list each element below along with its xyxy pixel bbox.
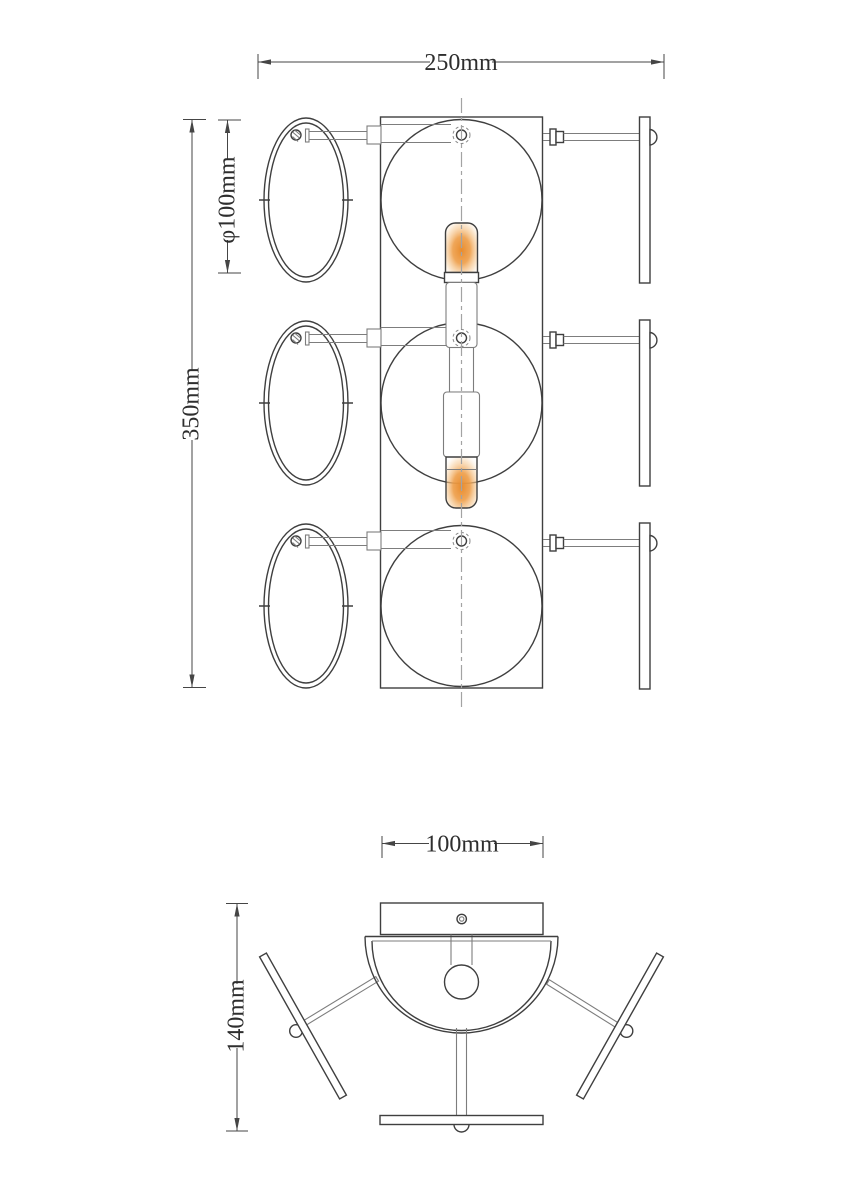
height-arrow-top <box>189 120 194 133</box>
dimension-overall-depth-label: 140mm <box>224 979 250 1053</box>
depth-arrow-top <box>234 904 239 917</box>
holder-stem-lines <box>451 935 472 966</box>
right-bolt-head-2 <box>550 332 556 348</box>
canopy-arrow-left <box>382 841 395 846</box>
dimension-overall-height-label: 350mm <box>179 367 205 441</box>
screw-washer-3 <box>306 535 310 548</box>
right-bolt-head-3 <box>550 535 556 551</box>
depth-arrow-bottom <box>234 1118 239 1131</box>
dimension-canopy-width-label: 100mm <box>425 832 499 858</box>
arm-sleeve-2 <box>367 329 381 347</box>
left-angled-rod <box>301 977 378 1027</box>
top-view-dimensions: 100mm 140mm <box>224 832 544 1132</box>
right-bolt-head-1 <box>550 129 556 145</box>
bottom-arm-assembly <box>380 1028 543 1132</box>
side-disc-outer-3 <box>264 524 348 688</box>
bottom-rod-lines <box>457 1028 467 1116</box>
right-disc-edge-1 <box>640 117 651 283</box>
left-arm-rod-3 <box>309 538 367 546</box>
side-disc-inner-1 <box>269 123 344 277</box>
dimension-shade-diameter-label: φ100mm <box>215 156 241 244</box>
right-bolt-nut-1 <box>556 132 564 143</box>
screw-washer-1 <box>306 129 310 142</box>
dimension-overall-width-label: 250mm <box>424 50 498 76</box>
screw-washer-2 <box>306 332 310 345</box>
drawing-canvas: 250mm 350mm φ100mm <box>0 0 848 1200</box>
lamp-dimension-drawing: 250mm 350mm φ100mm <box>0 0 848 1200</box>
right-stub-3 <box>543 540 550 547</box>
right-disc-edge-3 <box>640 523 651 689</box>
right-bolt-nut-2 <box>556 335 564 346</box>
side-disc-outer-2 <box>264 321 348 485</box>
right-disc-edge-2 <box>640 320 651 486</box>
width-arrow-right <box>651 59 664 64</box>
left-arm-rod-1 <box>309 132 367 140</box>
right-angled-rod <box>547 980 622 1029</box>
side-disc-inner-2 <box>269 326 344 480</box>
left-arm-assembly <box>260 953 379 1099</box>
right-arm-rod-3 <box>564 540 640 547</box>
right-knob-2 <box>650 333 657 349</box>
bottom-disc-edge-top <box>380 1116 543 1125</box>
bulb-top-view <box>445 965 479 999</box>
diameter-arrow-bottom <box>225 260 230 273</box>
left-arm-rod-2 <box>309 335 367 343</box>
arm-sleeve-3 <box>367 532 381 550</box>
canopy-plate <box>381 903 544 935</box>
top-view-drawing: 100mm 140mm <box>224 832 664 1133</box>
right-knob-1 <box>650 130 657 146</box>
right-bolt-nut-3 <box>556 538 564 549</box>
right-arm-rod-1 <box>564 134 640 141</box>
canopy-arrow-right <box>530 841 543 846</box>
front-view-dimensions: 250mm 350mm φ100mm <box>179 50 665 688</box>
height-arrow-bottom <box>189 675 194 688</box>
canopy-screw-outer <box>457 914 466 923</box>
width-arrow-left <box>258 59 271 64</box>
right-arm-rod-2 <box>564 337 640 344</box>
diameter-arrow-top <box>225 120 230 133</box>
right-arm-assembly <box>547 953 664 1099</box>
side-disc-outer-1 <box>264 118 348 282</box>
front-view-drawing: 250mm 350mm φ100mm <box>179 50 665 709</box>
side-disc-inner-3 <box>269 529 344 683</box>
right-stub-1 <box>543 134 550 141</box>
left-disc-edge-top <box>260 953 347 1099</box>
right-disc-edge-top <box>577 953 664 1099</box>
canopy-screw-inner <box>460 917 464 921</box>
right-stub-2 <box>543 337 550 344</box>
arm-sleeve-1 <box>367 126 381 144</box>
right-knob-3 <box>650 536 657 552</box>
